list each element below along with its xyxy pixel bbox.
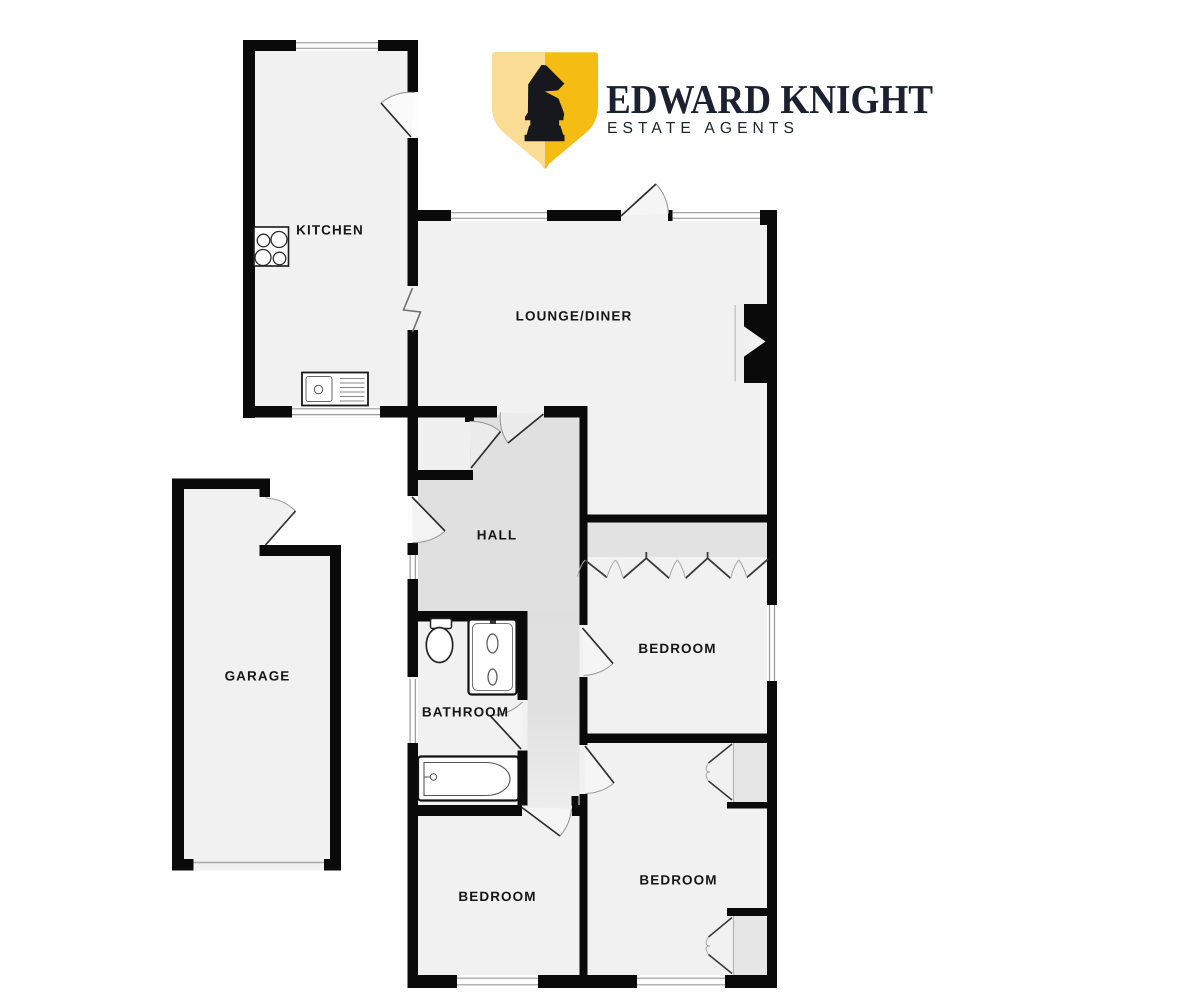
svg-text:BEDROOM: BEDROOM bbox=[638, 641, 716, 656]
svg-text:ESTATE AGENTS: ESTATE AGENTS bbox=[607, 120, 799, 137]
svg-text:HALL: HALL bbox=[477, 527, 517, 542]
svg-text:BEDROOM: BEDROOM bbox=[639, 872, 717, 887]
svg-text:BEDROOM: BEDROOM bbox=[458, 889, 536, 904]
svg-text:EDWARD KNIGHT: EDWARD KNIGHT bbox=[606, 76, 933, 122]
svg-text:BATHROOM: BATHROOM bbox=[422, 704, 509, 719]
svg-text:GARAGE: GARAGE bbox=[225, 668, 291, 683]
svg-text:LOUNGE/DINER: LOUNGE/DINER bbox=[516, 309, 633, 324]
svg-text:KITCHEN: KITCHEN bbox=[296, 222, 364, 237]
